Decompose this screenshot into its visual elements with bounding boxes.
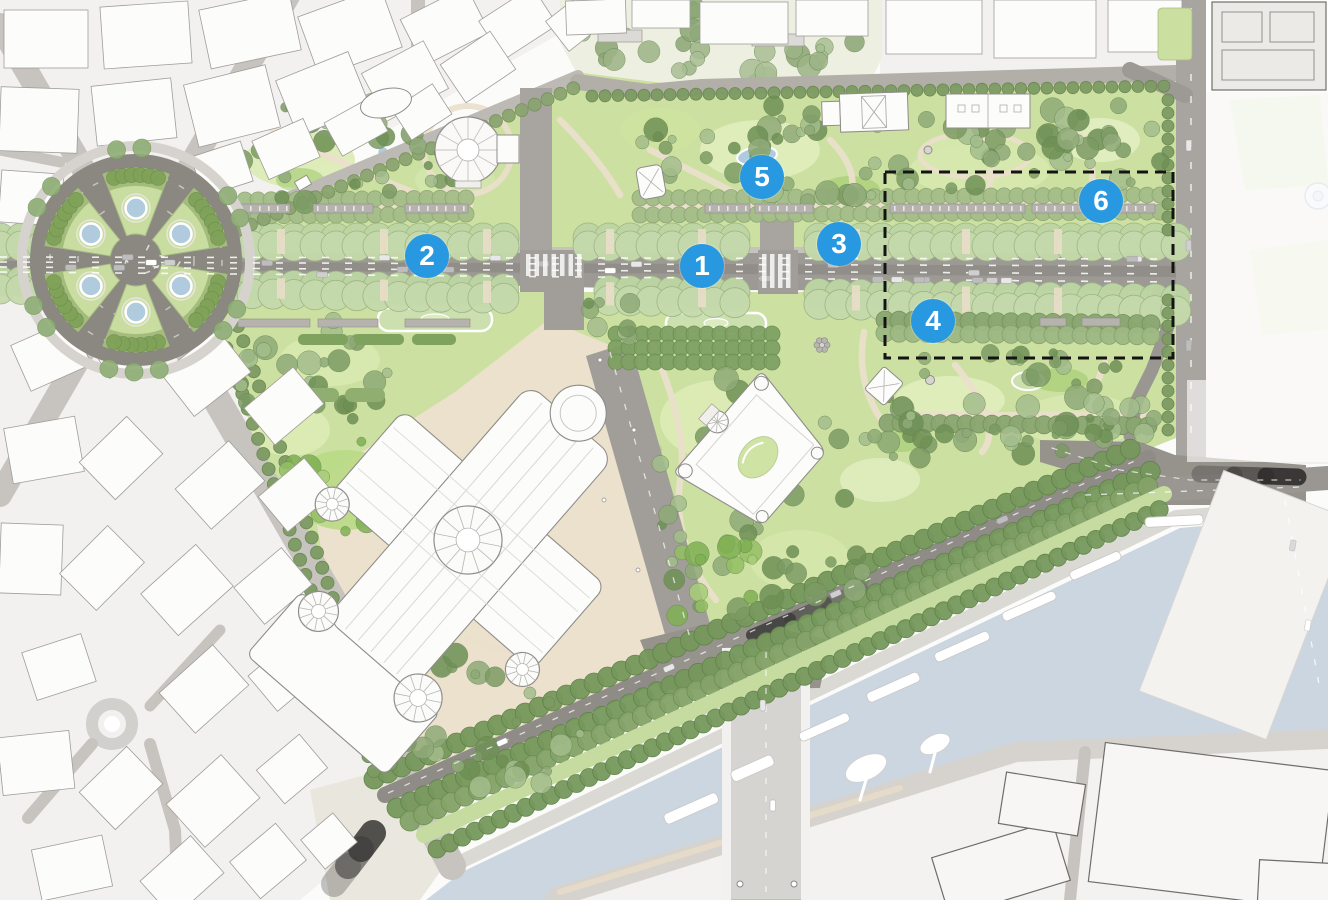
- pavilion-building: [946, 94, 1030, 128]
- map-marker-3[interactable]: 3: [817, 222, 861, 266]
- map-marker-2[interactable]: 2: [405, 234, 449, 278]
- map-canvas: [0, 0, 1328, 900]
- garden-pavilion: [635, 164, 666, 200]
- site-plan-map: 123456: [0, 0, 1328, 900]
- map-marker-4[interactable]: 4: [911, 299, 955, 343]
- map-marker-1[interactable]: 1: [680, 244, 724, 288]
- map-marker-5[interactable]: 5: [740, 155, 784, 199]
- map-marker-6[interactable]: 6: [1079, 179, 1123, 223]
- rond-point-roundabout: [22, 139, 250, 381]
